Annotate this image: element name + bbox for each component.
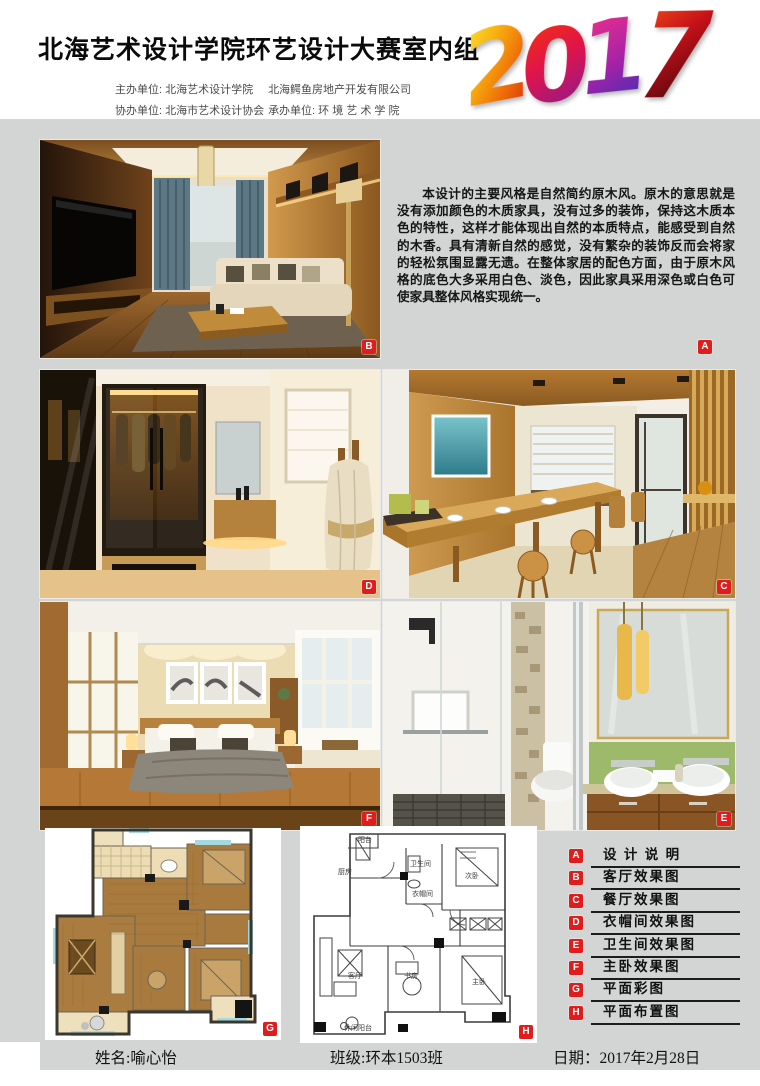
legend-chip-g: G [569, 983, 583, 997]
legend-label-f: 主卧效果图 [591, 958, 740, 980]
dining-room-render: C [383, 370, 735, 598]
design-description-text: 本设计的主要风格是自然简约原木风。原木的意思就是没有添加颜色的木质家具，没有过多… [397, 186, 735, 306]
date-value: 2017年2月28日 [600, 1050, 701, 1067]
legend-chip-d: D [569, 916, 583, 930]
bedroom-render: F [40, 602, 380, 830]
white-corner-notch [0, 1042, 40, 1070]
color-floor-plan-illustration [45, 828, 281, 1040]
legend-chip-a: A [569, 849, 583, 863]
year-2017-graphic: 2017 [459, 0, 714, 115]
legend-label-b: 客厅效果图 [591, 868, 740, 890]
legend-chip-e: E [569, 939, 583, 953]
legend-label-a: 设 计 说 明 [591, 846, 740, 868]
bedroom-illustration [40, 602, 380, 830]
bathroom-render: E [383, 602, 735, 830]
dining-room-illustration [383, 370, 735, 598]
label-chip-plan-layout: H [519, 1025, 533, 1039]
legend-row-f: F 主卧效果图 [567, 958, 740, 980]
date-label: 日期： [553, 1050, 600, 1067]
legend: A 设 计 说 明 B 客厅效果图 C 餐厅效果图 D 衣帽间效果图 E 卫生间… [567, 846, 740, 1025]
name-label: 姓名: [95, 1050, 130, 1067]
legend-chip-h: H [569, 1006, 583, 1020]
plan-room-balcony: 阳台 [358, 835, 372, 844]
living-room-illustration [40, 140, 380, 358]
date: 日期：2017年2月28日 [553, 1046, 700, 1068]
name-value: 喻心怡 [130, 1050, 177, 1067]
plan-room-living: 客厅 [348, 971, 362, 980]
page-title: 北海艺术设计学院环艺设计大赛室内组 [38, 30, 480, 66]
legend-chip-c: C [569, 894, 583, 908]
class-value: 环本1503班 [365, 1050, 443, 1067]
legend-row-b: B 客厅效果图 [567, 868, 740, 890]
legend-row-c: C 餐厅效果图 [567, 891, 740, 913]
label-chip-living: B [362, 340, 376, 354]
co-organizer-unit: 协办单位: 北海市艺术设计协会 [115, 101, 265, 122]
organizer-row: 主办单位: 北海艺术设计学院 北海鳄鱼房地产开发有限公司 [115, 80, 411, 101]
legend-label-g: 平面彩图 [591, 980, 740, 1002]
label-chip-description: A [698, 340, 712, 354]
closet-render: D [40, 370, 380, 598]
developer-unit: 北海鳄鱼房地产开发有限公司 [268, 80, 411, 101]
label-chip-bath: E [717, 812, 731, 826]
legend-row-a: A 设 计 说 明 [567, 846, 740, 868]
label-chip-dining: C [717, 580, 731, 594]
legend-label-c: 餐厅效果图 [591, 891, 740, 913]
author-class: 班级:环本1503班 [330, 1046, 443, 1068]
host-unit: 主办单位: 北海艺术设计学院 [115, 80, 265, 101]
organizer-block: 主办单位: 北海艺术设计学院 北海鳄鱼房地产开发有限公司 协办单位: 北海市艺术… [115, 80, 411, 122]
design-description: 本设计的主要风格是自然简约原木风。原木的意思就是没有添加颜色的木质家具，没有过多… [397, 186, 735, 306]
plan-room-study: 书房 [404, 971, 418, 980]
plan-room-kitchen: 厨房 [338, 867, 352, 876]
organizer-row: 协办单位: 北海市艺术设计协会 承办单位: 环 境 艺 术 学 院 [115, 101, 411, 122]
label-chip-bedroom: F [362, 812, 376, 826]
living-room-render: B [40, 140, 380, 358]
class-label: 班级: [330, 1050, 365, 1067]
undertaker-unit: 承办单位: 环 境 艺 术 学 院 [268, 101, 399, 122]
legend-label-d: 衣帽间效果图 [591, 913, 740, 935]
legend-chip-b: B [569, 871, 583, 885]
author-name: 姓名:喻心怡 [95, 1046, 177, 1068]
legend-row-d: D 衣帽间效果图 [567, 913, 740, 935]
legend-row-h: H 平面布置图 [567, 1003, 740, 1025]
layout-floor-plan-illustration: 阳台 厨房 卫生间 次卧 衣帽间 客厅 书房 主卧 休闲阳台 [300, 826, 537, 1043]
bathroom-illustration [383, 602, 735, 830]
label-chip-plan-color: G [263, 1022, 277, 1036]
plan-room-bedroom2: 次卧 [465, 871, 479, 880]
plan-room-leisure-balcony: 休闲阳台 [344, 1023, 372, 1032]
legend-row-e: E 卫生间效果图 [567, 936, 740, 958]
plan-room-closet: 衣帽间 [412, 889, 433, 898]
legend-row-g: G 平面彩图 [567, 980, 740, 1002]
layout-floor-plan: 阳台 厨房 卫生间 次卧 衣帽间 客厅 书房 主卧 休闲阳台 H [300, 826, 537, 1043]
competition-poster: 北海艺术设计学院环艺设计大赛室内组 主办单位: 北海艺术设计学院 北海鳄鱼房地产… [0, 0, 760, 1086]
legend-label-e: 卫生间效果图 [591, 936, 740, 958]
legend-chip-f: F [569, 961, 583, 975]
legend-label-h: 平面布置图 [591, 1003, 740, 1025]
plan-room-bathroom: 卫生间 [410, 859, 431, 868]
color-floor-plan: G [45, 828, 281, 1040]
plan-room-master: 主卧 [472, 977, 486, 986]
closet-illustration [40, 370, 380, 598]
label-chip-closet: D [362, 580, 376, 594]
